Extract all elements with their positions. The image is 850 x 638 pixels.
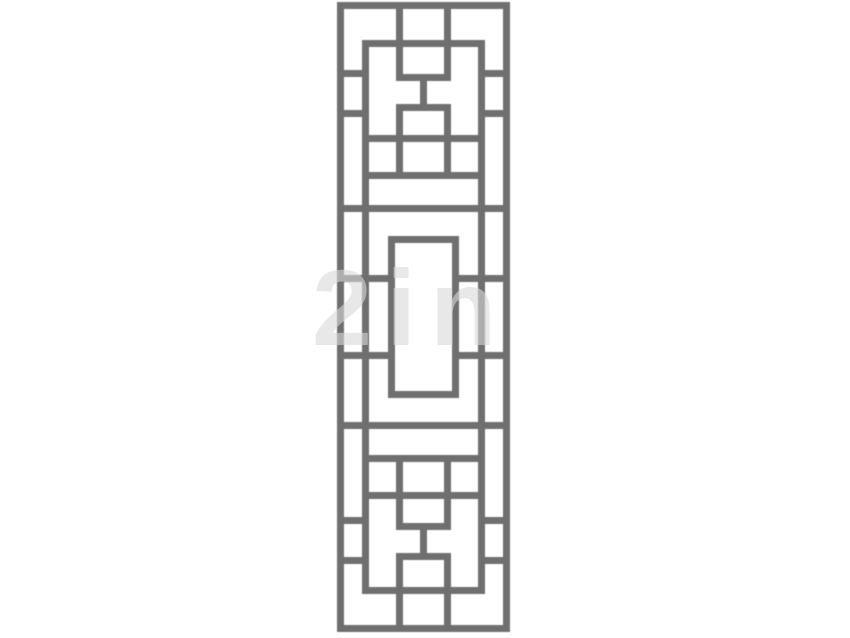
lattice-bar-v-10 — [452, 236, 459, 398]
lattice-bar-h-8 — [362, 135, 485, 142]
lattice-bar-h-23 — [396, 553, 451, 560]
lattice-bar-h-1 — [362, 40, 485, 47]
lattice-bar-v-15 — [444, 560, 451, 625]
lattice-bar-h-11 — [388, 236, 459, 243]
lattice-bar-h-0 — [337, 2, 510, 9]
lattice-bar-h-26 — [362, 587, 485, 594]
lattice-bar-h-18 — [362, 455, 485, 462]
lattice-bar-v-6 — [420, 81, 427, 104]
lattice-bar-v-4 — [396, 9, 403, 74]
lattice-bar-h-9 — [362, 172, 485, 179]
lattice-bar-h-19 — [362, 492, 485, 499]
lattice-bar-h-4 — [396, 74, 451, 81]
lattice-bar-v-5 — [444, 9, 451, 74]
lattice-bar-v-12 — [444, 462, 451, 523]
lattice-bar-v-1 — [503, 2, 510, 632]
lattice-bar-v-3 — [478, 40, 485, 594]
lattice-bar-v-0 — [337, 2, 344, 632]
lattice-bar-v-14 — [396, 560, 403, 625]
lattice-bar-v-9 — [388, 236, 395, 398]
lattice-bar-h-5 — [396, 104, 451, 111]
page-background: 2in — [0, 0, 850, 638]
lattice-bar-h-16 — [388, 391, 459, 398]
lattice-bar-v-13 — [420, 530, 427, 553]
lattice-bar-h-27 — [337, 625, 510, 632]
lattice-bar-v-7 — [396, 111, 403, 172]
lattice-bar-v-2 — [362, 40, 369, 594]
lattice-bar-v-8 — [444, 111, 451, 172]
lattice-bar-v-11 — [396, 462, 403, 523]
lattice-panel — [337, 2, 510, 632]
lattice-bar-h-22 — [396, 523, 451, 530]
